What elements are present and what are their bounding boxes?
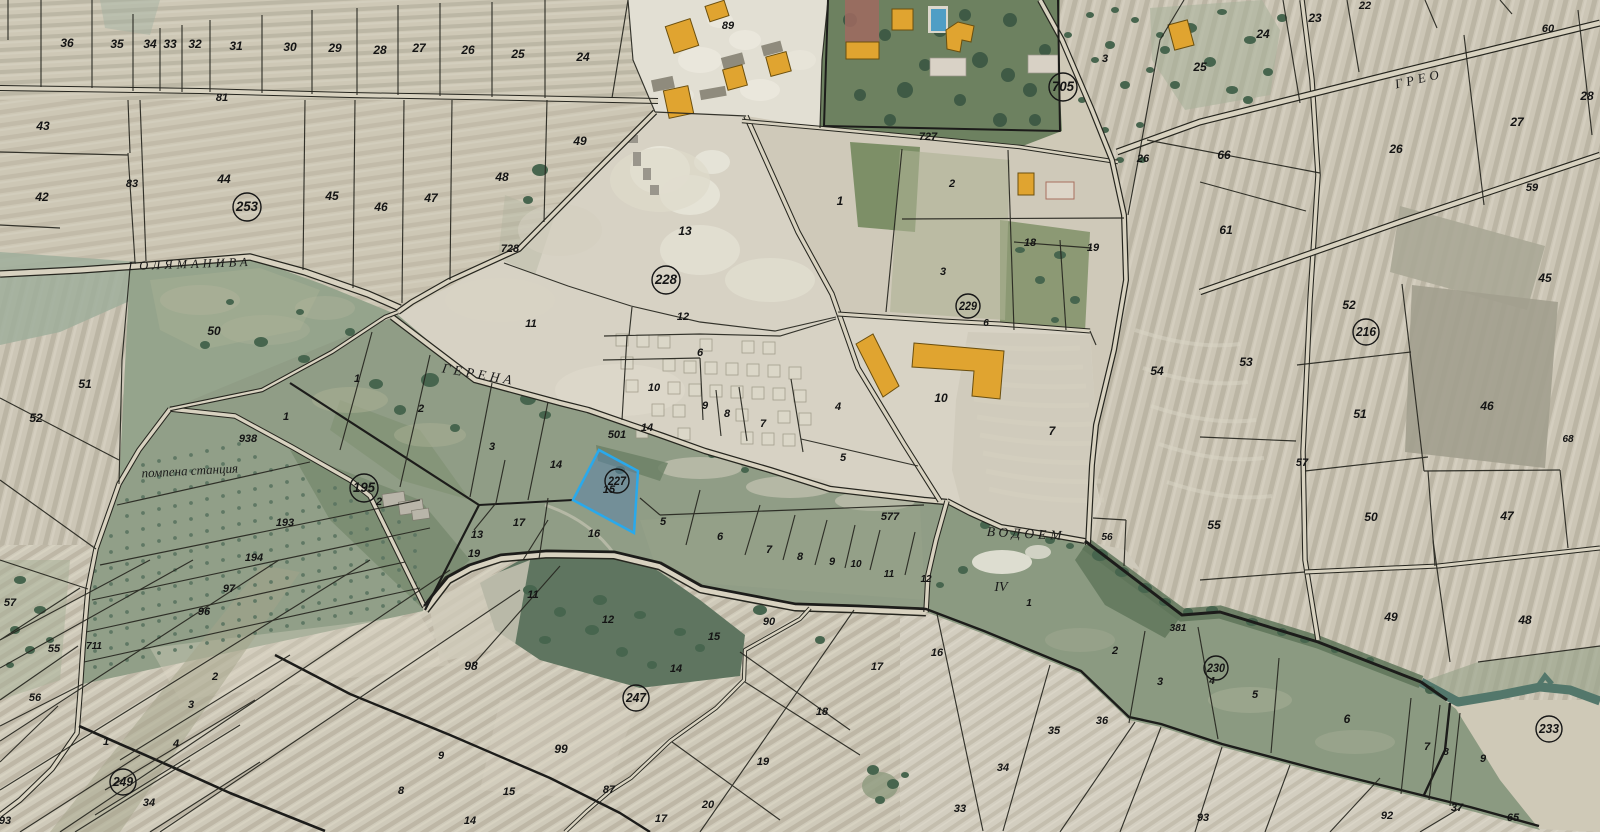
svg-text:51: 51 xyxy=(1353,407,1367,421)
svg-text:7: 7 xyxy=(766,544,773,556)
svg-text:46: 46 xyxy=(1479,399,1494,413)
svg-text:93: 93 xyxy=(1197,812,1209,824)
svg-text:4: 4 xyxy=(834,401,841,413)
svg-text:42: 42 xyxy=(34,190,49,204)
svg-text:34: 34 xyxy=(143,797,155,809)
svg-text:12: 12 xyxy=(920,574,932,585)
svg-text:96: 96 xyxy=(198,606,211,618)
svg-text:6: 6 xyxy=(717,531,724,543)
svg-text:25: 25 xyxy=(510,47,525,61)
svg-text:19: 19 xyxy=(468,548,481,560)
svg-text:19: 19 xyxy=(1087,242,1100,254)
svg-text:27: 27 xyxy=(411,41,427,55)
svg-text:66: 66 xyxy=(1217,148,1231,162)
svg-text:17: 17 xyxy=(871,661,884,673)
svg-text:15: 15 xyxy=(603,484,616,496)
svg-text:27: 27 xyxy=(1509,115,1525,129)
svg-text:18: 18 xyxy=(1024,237,1037,249)
svg-text:14: 14 xyxy=(464,815,476,827)
svg-text:51: 51 xyxy=(78,377,92,391)
svg-text:92: 92 xyxy=(1381,810,1393,822)
svg-text:8: 8 xyxy=(724,408,731,420)
svg-text:1: 1 xyxy=(283,411,289,423)
svg-text:253: 253 xyxy=(235,199,258,214)
svg-text:4: 4 xyxy=(172,738,179,750)
svg-text:15: 15 xyxy=(503,786,516,798)
svg-text:15: 15 xyxy=(708,631,721,643)
svg-text:56: 56 xyxy=(29,692,42,704)
svg-text:49: 49 xyxy=(1383,610,1398,624)
svg-text:1: 1 xyxy=(837,194,844,208)
svg-text:247: 247 xyxy=(625,691,647,705)
svg-text:48: 48 xyxy=(1517,613,1532,627)
svg-text:61: 61 xyxy=(1219,223,1233,237)
svg-text:2: 2 xyxy=(417,403,424,415)
svg-text:8: 8 xyxy=(797,551,804,563)
svg-text:16: 16 xyxy=(931,647,944,659)
svg-text:8: 8 xyxy=(398,785,405,797)
svg-text:9: 9 xyxy=(702,400,709,412)
svg-text:11: 11 xyxy=(884,569,895,580)
svg-text:68: 68 xyxy=(1562,434,1574,445)
svg-text:24: 24 xyxy=(1255,27,1270,41)
svg-text:46: 46 xyxy=(373,200,388,214)
svg-text:2: 2 xyxy=(1111,645,1118,657)
svg-text:33: 33 xyxy=(954,803,966,815)
svg-text:99: 99 xyxy=(554,742,568,756)
svg-text:65: 65 xyxy=(1507,812,1520,824)
svg-text:22: 22 xyxy=(1358,0,1371,12)
svg-text:17: 17 xyxy=(513,517,526,529)
svg-text:8: 8 xyxy=(1443,747,1449,758)
svg-text:59: 59 xyxy=(1526,182,1539,194)
svg-text:57: 57 xyxy=(1296,457,1309,469)
svg-text:55: 55 xyxy=(48,643,61,655)
svg-text:36: 36 xyxy=(60,36,74,50)
svg-text:55: 55 xyxy=(1207,518,1221,532)
svg-text:19: 19 xyxy=(757,756,770,768)
svg-text:57: 57 xyxy=(4,597,17,609)
svg-text:93: 93 xyxy=(0,815,11,827)
svg-text:37: 37 xyxy=(1451,802,1464,814)
svg-text:12: 12 xyxy=(677,311,689,323)
svg-text:381: 381 xyxy=(1170,623,1187,634)
svg-text:97: 97 xyxy=(223,583,236,595)
svg-text:3: 3 xyxy=(188,699,194,711)
svg-text:32: 32 xyxy=(188,37,202,51)
svg-text:49: 49 xyxy=(572,134,587,148)
svg-text:7: 7 xyxy=(760,418,767,430)
svg-text:47: 47 xyxy=(423,191,439,205)
svg-text:26: 26 xyxy=(1136,153,1150,165)
svg-text:2: 2 xyxy=(948,178,955,190)
svg-text:81: 81 xyxy=(216,92,228,104)
svg-text:3: 3 xyxy=(1102,53,1108,65)
svg-text:6: 6 xyxy=(697,347,704,359)
svg-text:13: 13 xyxy=(678,224,692,238)
svg-text:5: 5 xyxy=(840,452,847,464)
svg-text:577: 577 xyxy=(881,511,900,523)
svg-text:3: 3 xyxy=(1157,676,1163,688)
svg-text:195: 195 xyxy=(353,480,375,495)
svg-text:31: 31 xyxy=(229,39,243,53)
svg-text:35: 35 xyxy=(1048,725,1061,737)
svg-text:18: 18 xyxy=(816,706,829,718)
svg-text:194: 194 xyxy=(245,552,263,564)
svg-text:26: 26 xyxy=(1388,142,1403,156)
svg-text:3: 3 xyxy=(940,266,946,278)
svg-text:50: 50 xyxy=(207,324,221,338)
svg-text:60: 60 xyxy=(1542,23,1555,35)
svg-text:34: 34 xyxy=(143,37,157,51)
svg-text:33: 33 xyxy=(163,37,177,51)
svg-text:56: 56 xyxy=(1101,532,1113,543)
svg-text:228: 228 xyxy=(654,272,677,287)
svg-text:53: 53 xyxy=(1239,355,1253,369)
svg-text:20: 20 xyxy=(701,799,715,811)
svg-text:23: 23 xyxy=(1307,11,1322,25)
svg-text:89: 89 xyxy=(722,20,735,32)
svg-text:711: 711 xyxy=(86,641,102,652)
svg-text:14: 14 xyxy=(670,663,682,675)
svg-text:26: 26 xyxy=(460,43,475,57)
svg-text:87: 87 xyxy=(603,784,616,796)
svg-text:14: 14 xyxy=(641,422,653,434)
svg-text:1: 1 xyxy=(1026,598,1032,609)
svg-text:938: 938 xyxy=(239,433,258,445)
svg-text:28: 28 xyxy=(372,43,387,57)
svg-text:36: 36 xyxy=(1096,715,1109,727)
svg-text:24: 24 xyxy=(575,50,590,64)
svg-text:705: 705 xyxy=(1052,79,1074,94)
svg-text:IV: IV xyxy=(993,580,1009,595)
svg-text:3: 3 xyxy=(489,441,495,453)
svg-text:34: 34 xyxy=(997,762,1009,774)
svg-text:12: 12 xyxy=(602,614,614,626)
svg-text:11: 11 xyxy=(525,318,536,330)
svg-text:25: 25 xyxy=(1192,60,1207,74)
svg-text:83: 83 xyxy=(126,178,138,190)
svg-text:249: 249 xyxy=(112,775,133,789)
svg-text:13: 13 xyxy=(471,529,483,541)
svg-text:6: 6 xyxy=(983,318,989,329)
svg-text:50: 50 xyxy=(1364,510,1378,524)
svg-text:501: 501 xyxy=(608,429,626,441)
svg-text:9: 9 xyxy=(1480,753,1487,765)
svg-text:216: 216 xyxy=(1355,325,1377,339)
svg-text:45: 45 xyxy=(1537,271,1552,285)
svg-text:48: 48 xyxy=(494,170,509,184)
svg-text:6: 6 xyxy=(1344,712,1351,726)
svg-text:16: 16 xyxy=(588,528,601,540)
svg-text:54: 54 xyxy=(1150,364,1164,378)
svg-text:5: 5 xyxy=(660,516,667,528)
svg-text:9: 9 xyxy=(438,750,445,762)
svg-text:193: 193 xyxy=(276,517,294,529)
svg-text:230: 230 xyxy=(1206,663,1226,675)
svg-text:35: 35 xyxy=(110,37,124,51)
svg-text:233: 233 xyxy=(1538,722,1559,736)
svg-text:10: 10 xyxy=(934,391,948,405)
svg-text:30: 30 xyxy=(283,40,297,54)
svg-text:47: 47 xyxy=(1499,509,1515,523)
svg-text:43: 43 xyxy=(35,119,50,133)
svg-text:2: 2 xyxy=(211,671,218,683)
svg-text:17: 17 xyxy=(655,813,668,825)
svg-text:10: 10 xyxy=(850,559,862,570)
svg-text:9: 9 xyxy=(829,556,836,568)
svg-text:2: 2 xyxy=(375,496,382,508)
svg-text:14: 14 xyxy=(550,459,562,471)
svg-text:5: 5 xyxy=(1252,689,1259,701)
svg-text:98: 98 xyxy=(464,659,478,673)
svg-text:728: 728 xyxy=(501,243,520,255)
svg-text:45: 45 xyxy=(324,189,339,203)
svg-text:10: 10 xyxy=(648,382,661,394)
svg-text:229: 229 xyxy=(958,301,978,313)
svg-text:52: 52 xyxy=(29,411,43,425)
svg-text:28: 28 xyxy=(1579,89,1594,103)
svg-text:44: 44 xyxy=(216,172,231,186)
svg-text:7: 7 xyxy=(1424,741,1431,753)
svg-text:52: 52 xyxy=(1342,298,1356,312)
svg-text:29: 29 xyxy=(327,41,342,55)
svg-text:4: 4 xyxy=(1208,676,1215,687)
svg-text:90: 90 xyxy=(763,616,776,628)
svg-text:11: 11 xyxy=(527,589,538,601)
svg-text:1: 1 xyxy=(103,736,109,748)
svg-text:1: 1 xyxy=(354,373,360,385)
svg-text:727: 727 xyxy=(919,131,938,143)
